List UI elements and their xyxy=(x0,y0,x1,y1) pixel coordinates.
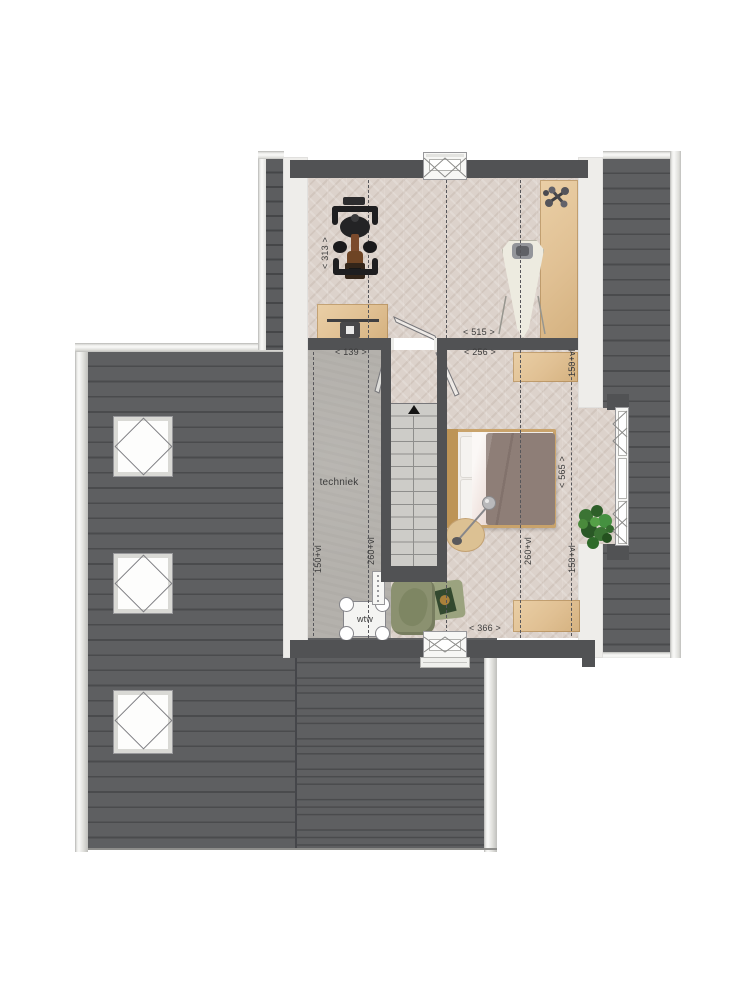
window-glyph-overlay xyxy=(0,0,750,1000)
dormer-window-opening-icon xyxy=(613,411,627,544)
dim-260vl-bedroom: 260+vl xyxy=(522,521,534,581)
dim-gym-width: < 313 > xyxy=(319,223,331,283)
dim-260vl-techniek: 260+vl xyxy=(365,521,377,581)
dim-150vl-bedroom: 150+vl xyxy=(566,529,578,589)
dim-bedroom-top-width: < 256 > xyxy=(450,346,510,358)
floorplan-canvas: wtw xyxy=(0,0,750,1000)
room-label-techniek: techniek xyxy=(294,477,384,489)
top-window-opening-icon xyxy=(424,158,466,177)
bottom-window-opening-icon xyxy=(424,637,466,652)
dim-150vl-gym: 150+vl xyxy=(566,333,578,393)
dim-hall-width: < 139 > xyxy=(321,346,381,358)
dim-150vl-techniek: 150+vl xyxy=(312,529,324,589)
dim-bedroom-bottom-width: < 366 > xyxy=(455,622,515,634)
dim-gym-length: < 515 > xyxy=(449,326,509,338)
dim-bedroom-length: < 565 > xyxy=(556,442,568,502)
